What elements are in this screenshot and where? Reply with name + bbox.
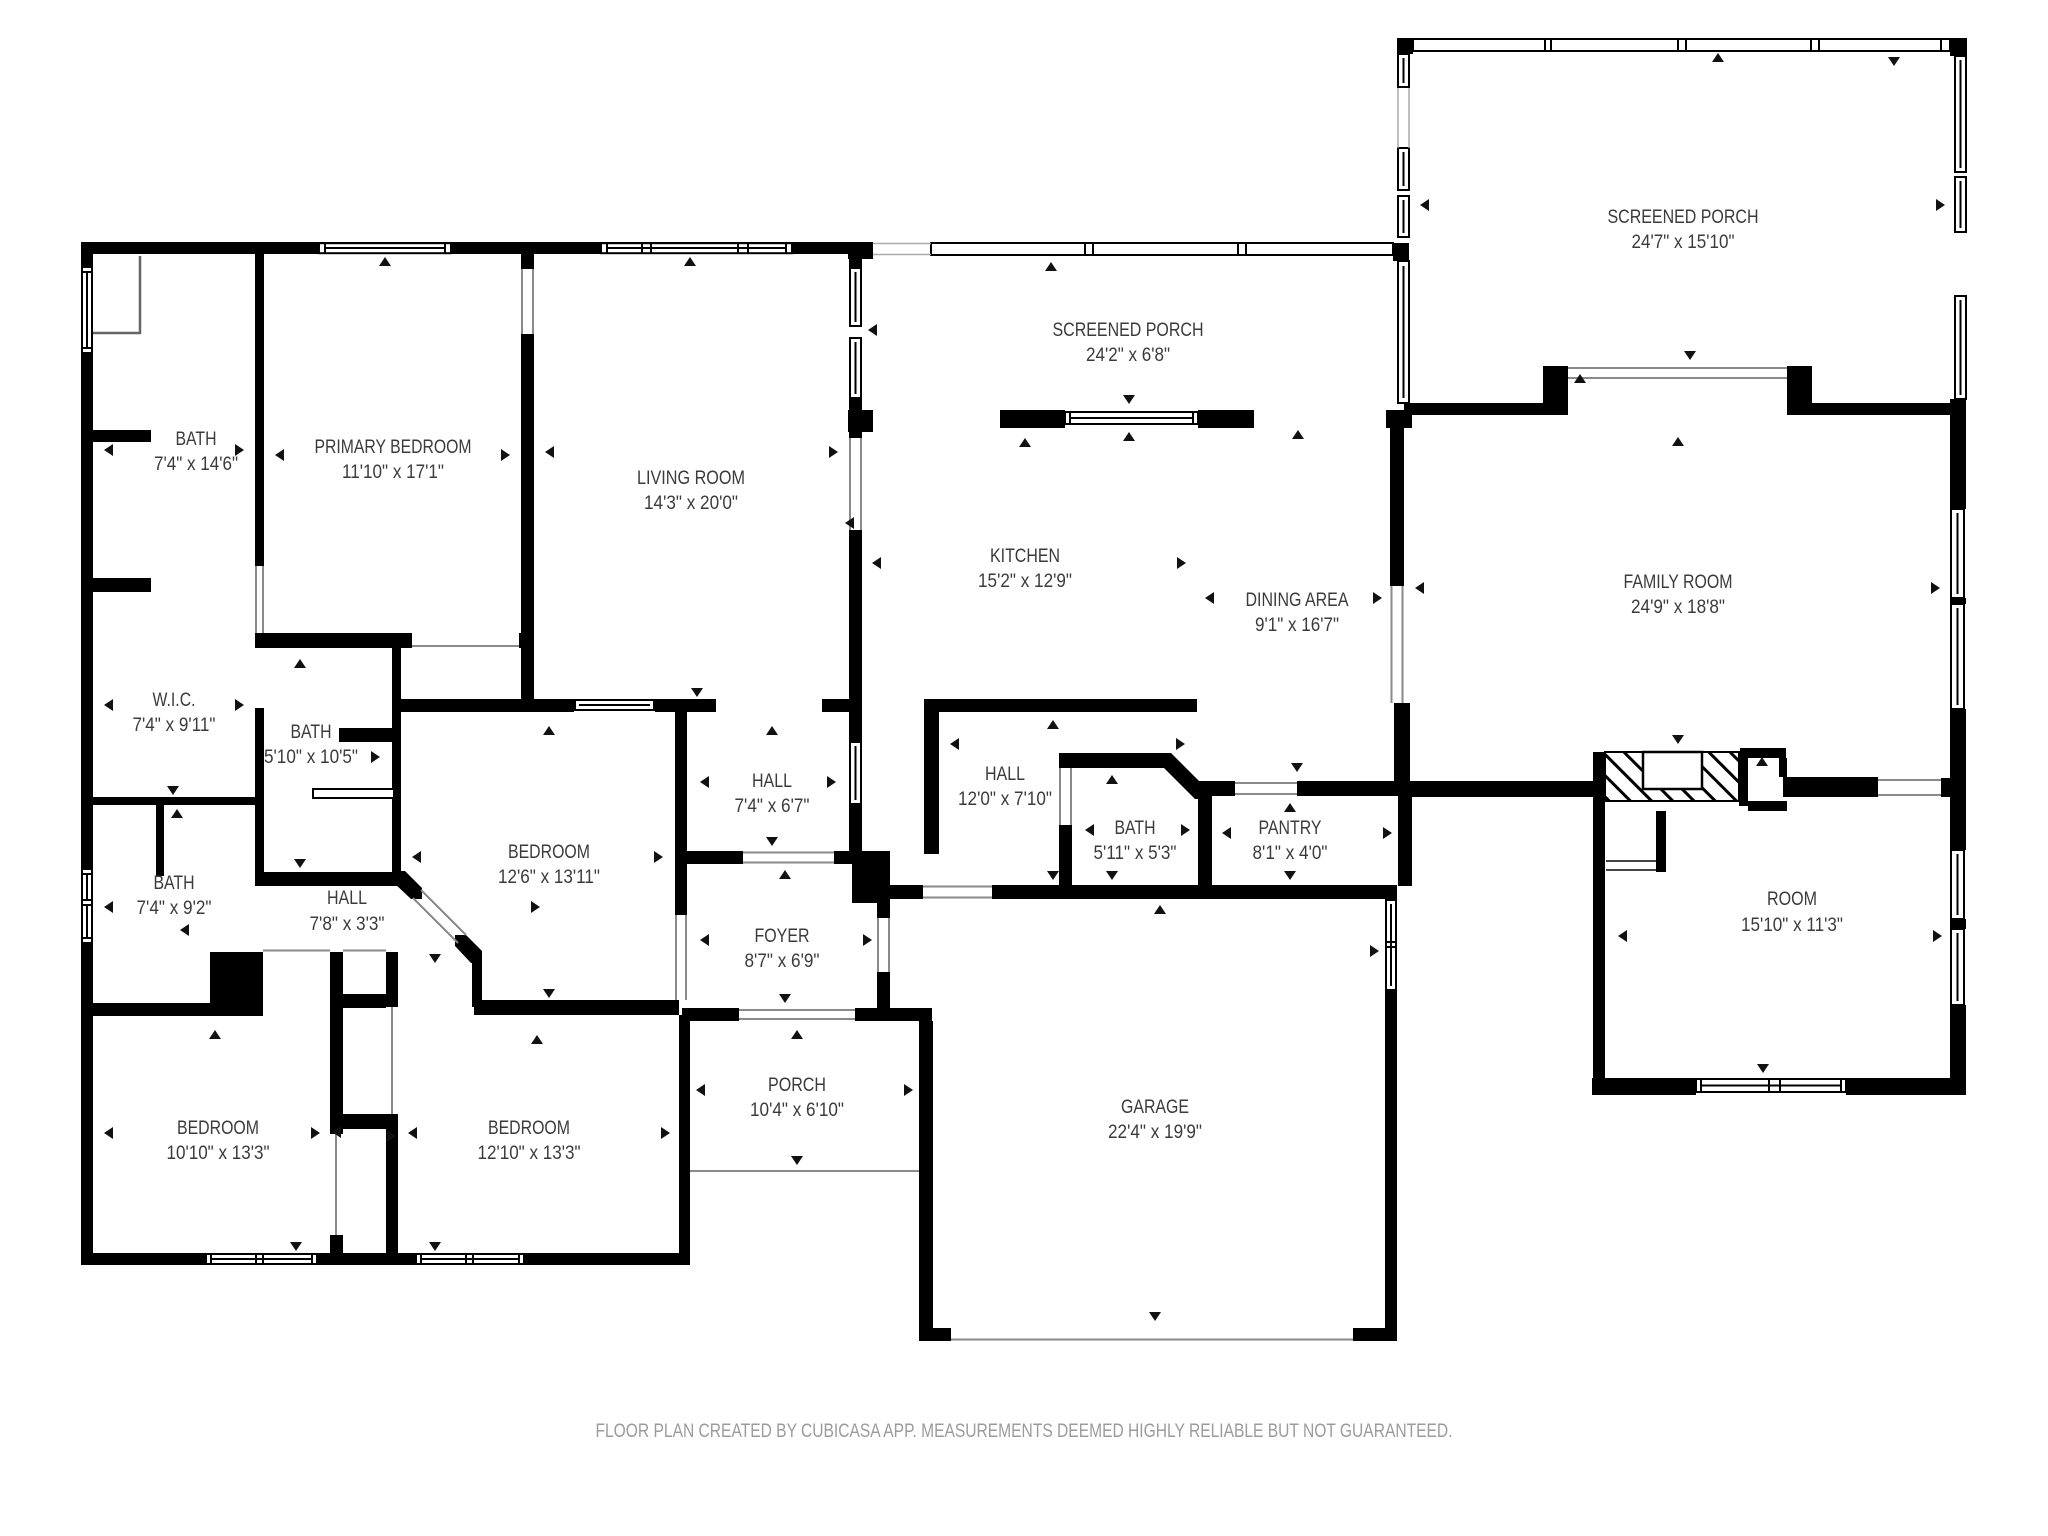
svg-text:FAMILY ROOM: FAMILY ROOM bbox=[1624, 572, 1733, 593]
svg-text:ROOM: ROOM bbox=[1767, 889, 1817, 910]
svg-text:DINING AREA: DINING AREA bbox=[1246, 590, 1349, 611]
svg-text:7'4" x 9'2": 7'4" x 9'2" bbox=[137, 898, 212, 919]
svg-text:BEDROOM: BEDROOM bbox=[488, 1118, 570, 1139]
svg-text:FOYER: FOYER bbox=[755, 926, 810, 947]
svg-text:PRIMARY BEDROOM: PRIMARY BEDROOM bbox=[315, 437, 472, 458]
svg-text:8'7" x 6'9": 8'7" x 6'9" bbox=[745, 951, 820, 972]
svg-text:22'4" x 19'9": 22'4" x 19'9" bbox=[1108, 1122, 1202, 1143]
svg-text:12'0" x 7'10": 12'0" x 7'10" bbox=[958, 789, 1052, 810]
svg-text:HALL: HALL bbox=[752, 771, 792, 792]
svg-text:9'1" x 16'7": 9'1" x 16'7" bbox=[1255, 615, 1339, 636]
svg-text:BATH: BATH bbox=[176, 429, 217, 450]
svg-text:HALL: HALL bbox=[985, 764, 1025, 785]
svg-text:BEDROOM: BEDROOM bbox=[177, 1118, 259, 1139]
svg-text:PANTRY: PANTRY bbox=[1259, 818, 1322, 839]
svg-text:SCREENED PORCH: SCREENED PORCH bbox=[1608, 207, 1759, 228]
svg-text:5'11" x 5'3": 5'11" x 5'3" bbox=[1094, 843, 1177, 864]
svg-text:8'1" x 4'0": 8'1" x 4'0" bbox=[1253, 843, 1328, 864]
svg-text:11'10" x 17'1": 11'10" x 17'1" bbox=[342, 462, 444, 483]
svg-text:W.I.C.: W.I.C. bbox=[153, 690, 196, 711]
svg-text:7'4" x 6'7": 7'4" x 6'7" bbox=[735, 796, 810, 817]
svg-text:24'7" x 15'10": 24'7" x 15'10" bbox=[1632, 232, 1735, 253]
svg-text:24'9" x 18'8": 24'9" x 18'8" bbox=[1631, 597, 1725, 618]
svg-text:10'4" x 6'10": 10'4" x 6'10" bbox=[750, 1100, 844, 1121]
svg-text:24'2" x 6'8": 24'2" x 6'8" bbox=[1086, 345, 1170, 366]
svg-text:7'4" x 9'11": 7'4" x 9'11" bbox=[133, 715, 216, 736]
svg-text:GARAGE: GARAGE bbox=[1121, 1097, 1189, 1118]
svg-text:15'10" x 11'3": 15'10" x 11'3" bbox=[1741, 915, 1843, 936]
svg-text:BATH: BATH bbox=[291, 722, 332, 743]
svg-text:15'2" x 12'9": 15'2" x 12'9" bbox=[978, 571, 1072, 592]
svg-text:10'10" x 13'3": 10'10" x 13'3" bbox=[167, 1143, 270, 1164]
svg-text:LIVING ROOM: LIVING ROOM bbox=[637, 468, 745, 489]
svg-text:HALL: HALL bbox=[327, 888, 367, 909]
svg-text:14'3" x 20'0": 14'3" x 20'0" bbox=[644, 493, 738, 514]
svg-text:12'6" x 13'11": 12'6" x 13'11" bbox=[498, 867, 600, 888]
svg-text:BATH: BATH bbox=[154, 873, 195, 894]
svg-text:FLOOR PLAN CREATED BY CUBICASA: FLOOR PLAN CREATED BY CUBICASA APP. MEAS… bbox=[596, 1421, 1453, 1442]
svg-text:BEDROOM: BEDROOM bbox=[508, 842, 590, 863]
svg-text:KITCHEN: KITCHEN bbox=[990, 546, 1060, 567]
svg-text:PORCH: PORCH bbox=[768, 1075, 826, 1096]
svg-text:BATH: BATH bbox=[1115, 818, 1156, 839]
svg-text:SCREENED PORCH: SCREENED PORCH bbox=[1053, 320, 1204, 341]
svg-text:5'10" x 10'5": 5'10" x 10'5" bbox=[264, 747, 358, 768]
svg-text:12'10" x 13'3": 12'10" x 13'3" bbox=[478, 1143, 581, 1164]
svg-text:7'8" x 3'3": 7'8" x 3'3" bbox=[310, 914, 385, 935]
svg-text:7'4" x 14'6": 7'4" x 14'6" bbox=[154, 454, 238, 475]
